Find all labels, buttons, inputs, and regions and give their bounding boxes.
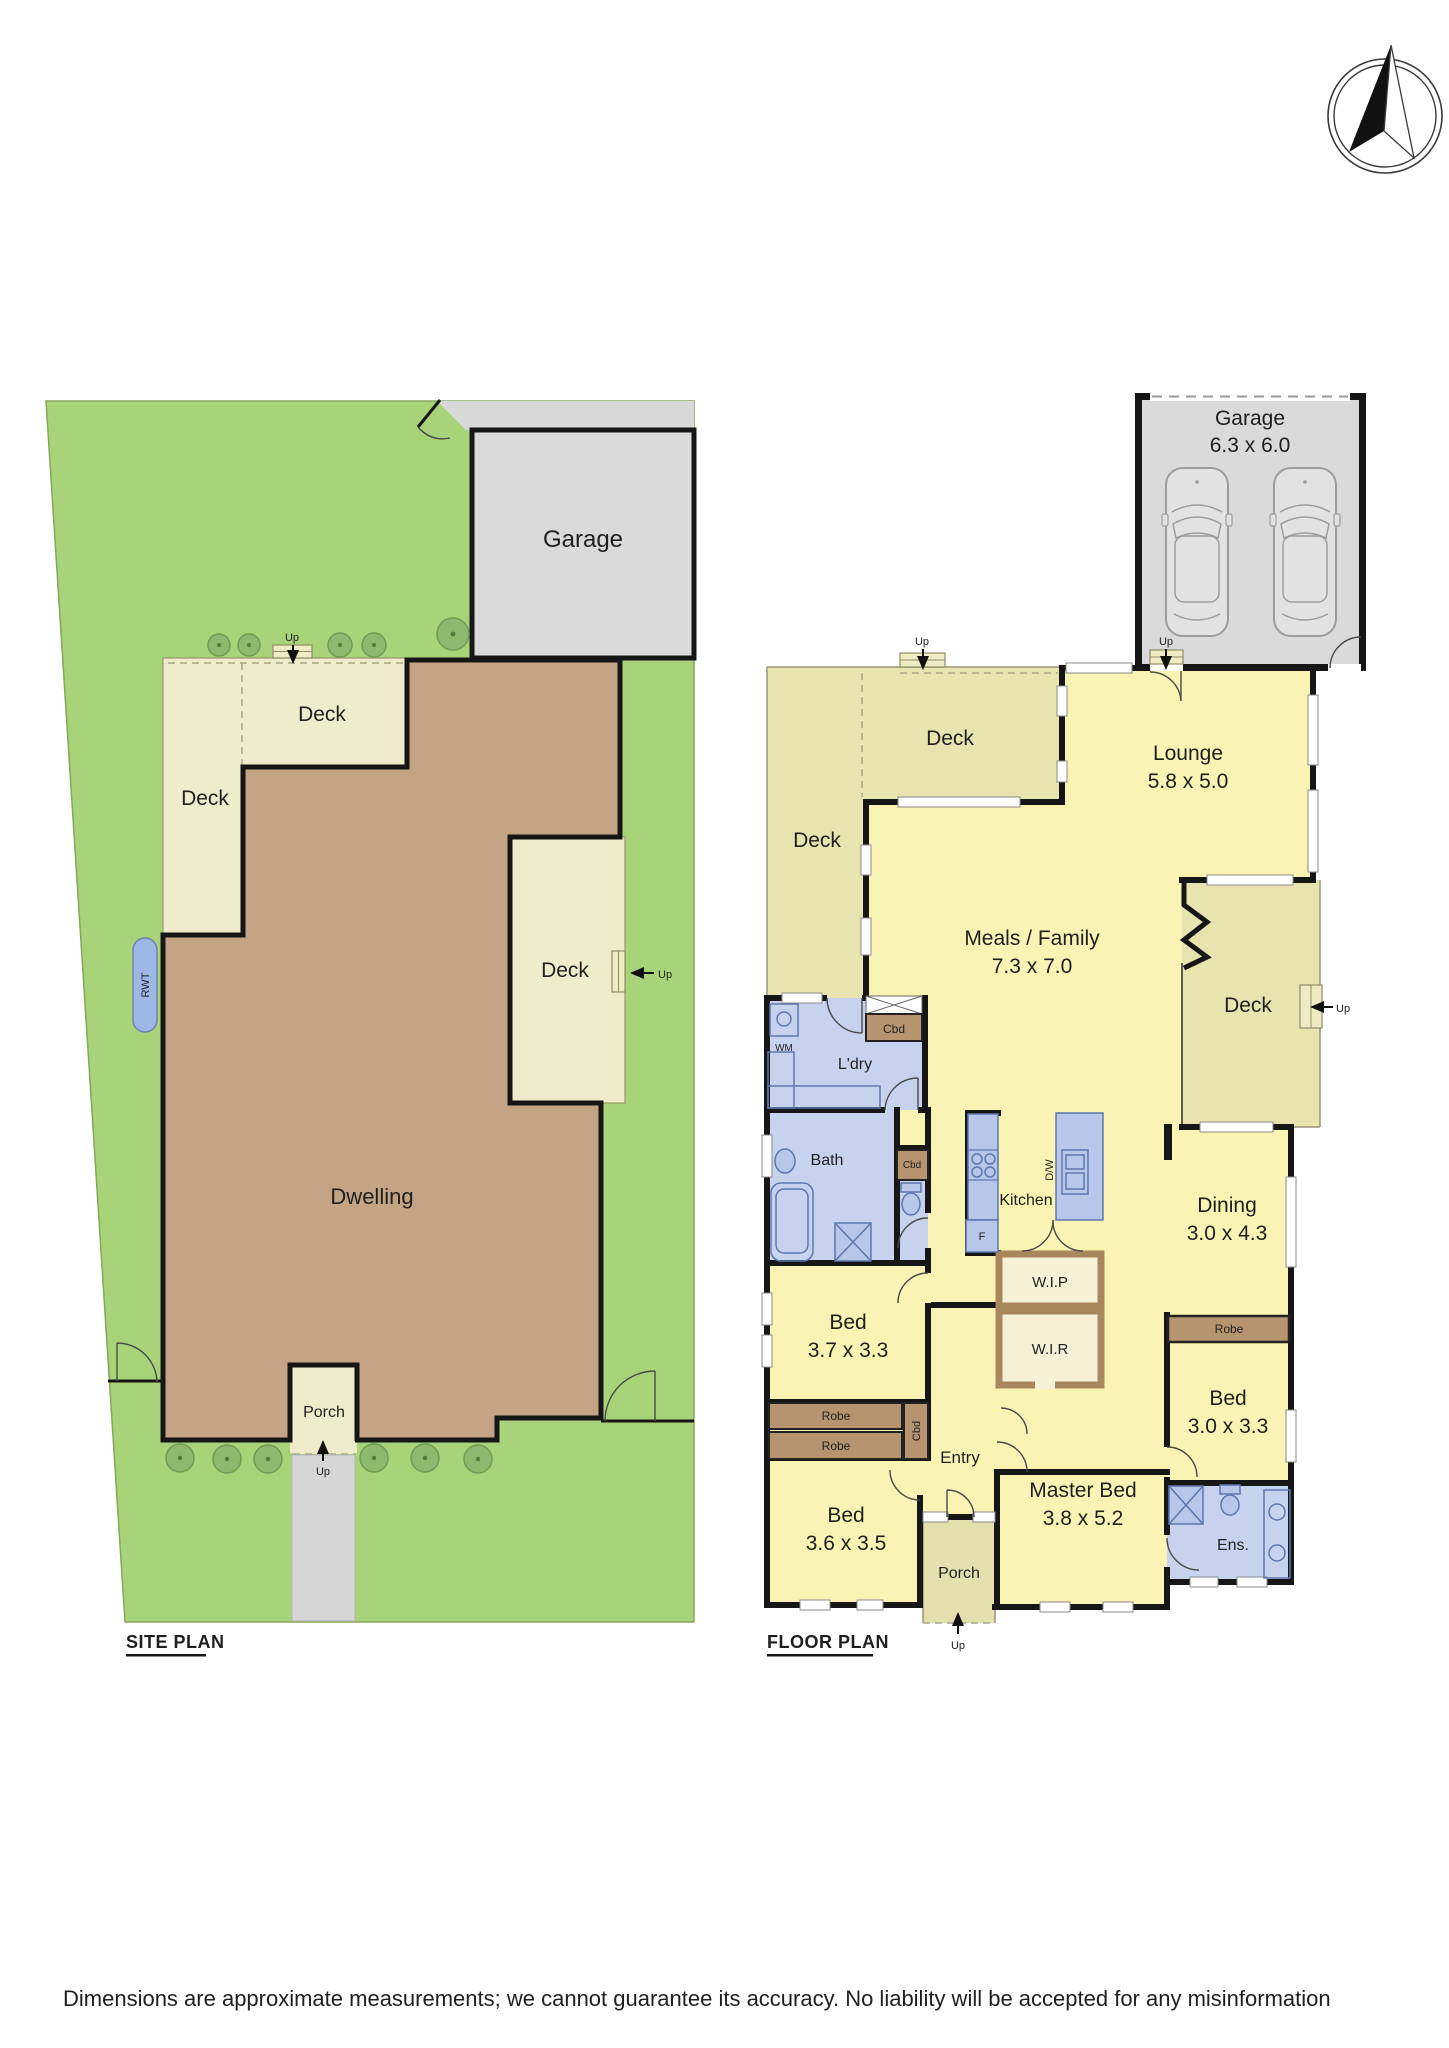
wip-label: W.I.P — [1032, 1274, 1068, 1291]
wir-label: W.I.R — [1032, 1341, 1069, 1358]
cbd-label-hall: Cbd — [911, 1421, 923, 1441]
laundry-label: L'dry — [838, 1056, 872, 1073]
site-plan-title: SITE PLAN — [126, 1632, 225, 1652]
garage-dim: 6.3 x 6.0 — [1210, 434, 1291, 457]
garage-label: Garage — [1215, 407, 1285, 430]
site-porch-label: Porch — [303, 1404, 345, 1421]
dining-label: Dining — [1197, 1194, 1257, 1217]
disclaimer-text: Dimensions are approximate measurements;… — [63, 1986, 1331, 2011]
bath-label: Bath — [811, 1152, 844, 1169]
site-path — [292, 1455, 355, 1621]
site-up-label-deck: Up — [285, 632, 299, 644]
deck-label-top: Deck — [926, 727, 974, 750]
floor-plan-title: FLOOR PLAN — [767, 1632, 889, 1652]
rwt-label: RWT — [140, 972, 152, 997]
lounge-label: Lounge — [1153, 742, 1223, 765]
rainwater-tank: RWT — [133, 938, 157, 1032]
deck-label-left: Deck — [793, 829, 841, 852]
wm-label: WM — [775, 1043, 793, 1054]
floorplan-sheet: RWT Garage Deck Deck Deck Dwelling Porch… — [0, 0, 1449, 2048]
bed2-label: Bed — [1209, 1387, 1246, 1410]
lounge-dim: 5.8 x 5.0 — [1148, 770, 1229, 793]
dw-label: D/W — [1044, 1159, 1056, 1181]
bed1-dim: 3.7 x 3.3 — [808, 1339, 889, 1362]
meals-dim: 7.3 x 7.0 — [992, 955, 1073, 978]
robe-label-1: Robe — [822, 1409, 851, 1423]
bed1-label: Bed — [829, 1311, 866, 1334]
site-driveway — [437, 401, 694, 430]
robe-label-dining: Robe — [1215, 1322, 1244, 1336]
up-label-deck: Up — [915, 636, 929, 648]
up-label-porch: Up — [951, 1640, 965, 1652]
kitchen-label: Kitchen — [999, 1192, 1052, 1209]
bed3-label: Bed — [827, 1504, 864, 1527]
site-plan: RWT Garage Deck Deck Deck Dwelling Porch… — [46, 400, 694, 1657]
master-label: Master Bed — [1029, 1479, 1136, 1502]
cbd-label-wc: Cbd — [903, 1160, 921, 1171]
cbd-label-laundry: Cbd — [883, 1022, 905, 1036]
meals-label: Meals / Family — [964, 927, 1100, 950]
up-label-deck-right: Up — [1336, 1003, 1350, 1015]
site-deck-label-right: Deck — [541, 959, 589, 982]
master-dim: 3.8 x 5.2 — [1043, 1507, 1124, 1530]
plan-canvas: RWT Garage Deck Deck Deck Dwelling Porch… — [0, 0, 1449, 2048]
bed3-dim: 3.6 x 3.5 — [806, 1532, 887, 1555]
site-up-label-deck-right: Up — [658, 969, 672, 981]
compass-north-icon — [1328, 45, 1442, 173]
site-up-label-porch: Up — [316, 1466, 330, 1478]
porch-label: Porch — [938, 1565, 980, 1582]
site-deck-label-top: Deck — [298, 703, 346, 726]
bath-room — [767, 1110, 897, 1263]
up-label-garage: Up — [1159, 636, 1173, 648]
robe-label-2: Robe — [822, 1439, 851, 1453]
garage-door-opening — [1150, 392, 1350, 401]
dining-dim: 3.0 x 4.3 — [1187, 1222, 1268, 1245]
fridge-label: F — [979, 1231, 986, 1243]
site-garage-label: Garage — [543, 526, 623, 553]
deck-label-right: Deck — [1224, 994, 1272, 1017]
entry-label: Entry — [940, 1448, 980, 1467]
ensuite-label: Ens. — [1217, 1537, 1249, 1554]
bed2-dim: 3.0 x 3.3 — [1188, 1415, 1269, 1438]
site-deck-label-left: Deck — [181, 787, 229, 810]
floor-plan: Garage 6.3 x 6.0 Lounge 5.8 x 5.0 Meals … — [762, 392, 1366, 1657]
site-dwelling-label: Dwelling — [330, 1184, 413, 1209]
